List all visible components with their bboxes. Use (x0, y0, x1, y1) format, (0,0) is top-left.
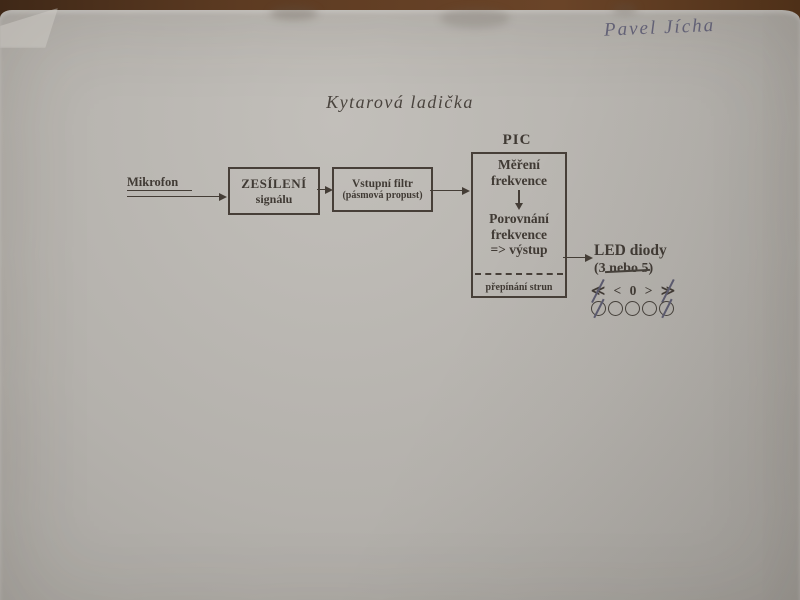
amp-box: ZESÍLENÍ signálu (228, 167, 320, 215)
photo-of-paper: Pavel Jícha Kytarová ladička Mikrofon ZE… (0, 0, 800, 600)
filter-box: Vstupní filtr (pásmová propust) (332, 167, 433, 212)
paper-smudge (440, 8, 510, 28)
led-symbol-far-sharp: ≫ (661, 283, 675, 299)
arrowhead-icon (219, 193, 227, 201)
pic-compare-line3: => výstup (489, 242, 549, 258)
led-circle (659, 301, 674, 316)
led-circle (608, 301, 623, 316)
amp-box-line2: signálu (256, 192, 293, 207)
arrowhead-icon (585, 254, 593, 262)
led-symbol-sharp: > (645, 283, 653, 299)
led-symbol-in-tune: 0 (630, 283, 637, 299)
led-circle (642, 301, 657, 316)
pic-compare-block: Porovnání frekvence => výstup (489, 211, 549, 258)
led-circle (591, 301, 606, 316)
led-symbol-row: ≪ < 0 > ≫ (591, 283, 675, 299)
arrow-filter-to-pic (430, 190, 463, 191)
arrow-pic-to-led (563, 257, 586, 258)
pic-compare-line2: frekvence (489, 227, 549, 243)
arrowhead-icon (462, 187, 470, 195)
down-arrow-icon (515, 190, 523, 210)
filter-box-line2: (pásmová propust) (342, 190, 422, 201)
pic-compare-line1: Porovnání (489, 211, 549, 227)
arrow-mikrofon-to-amp (127, 196, 219, 197)
amp-box-line1: ZESÍLENÍ (241, 176, 306, 192)
pic-measure-line1: Měření (491, 157, 547, 173)
led-count-open: (3 (594, 261, 609, 276)
pic-dashed-divider (475, 273, 563, 275)
led-circle-row (591, 301, 674, 316)
led-symbol-flat: < (614, 283, 622, 299)
diagram-title: Kytarová ladička (280, 92, 520, 113)
pic-footer-label: přepínání strun (473, 282, 565, 293)
led-symbol-far-flat: ≪ (591, 283, 605, 299)
filter-box-line1: Vstupní filtr (352, 178, 413, 190)
led-count: (3 nebo 5) (594, 261, 653, 277)
led-circle (625, 301, 640, 316)
pic-measure-line2: frekvence (491, 173, 547, 189)
paper-smudge (270, 6, 318, 20)
pic-box: Měření frekvence Porovnání frekvence => … (471, 152, 567, 298)
pic-label: PIC (471, 132, 563, 149)
mikrofon-label: Mikrofon (127, 175, 192, 191)
led-count-struck: nebo 5 (609, 261, 648, 277)
paper-smudge (612, 4, 638, 14)
led-title: LED diody (594, 242, 667, 260)
pic-measure-block: Měření frekvence (491, 157, 547, 188)
